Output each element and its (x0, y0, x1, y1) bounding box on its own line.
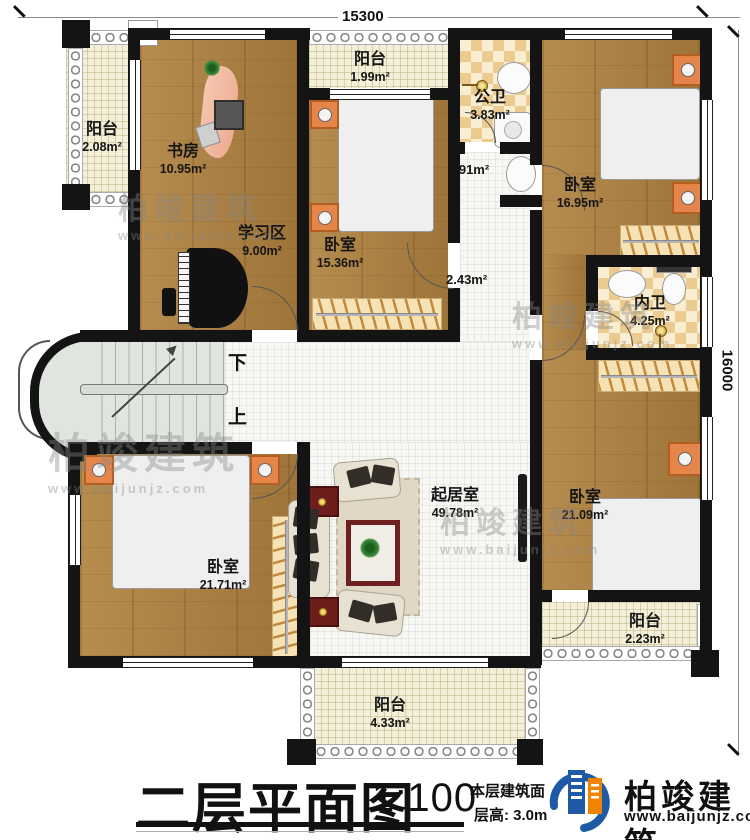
wall (448, 28, 460, 243)
floor-height-text: 层高: 3.0m (474, 804, 547, 825)
column (62, 20, 90, 48)
nightstand (668, 442, 702, 476)
railing (88, 30, 130, 45)
piano-icon (186, 248, 248, 328)
wall (297, 330, 460, 342)
title-underline-thin (136, 831, 464, 832)
floor-plan-canvas: 15300 16000 (0, 0, 750, 840)
plan-scale: 1:100 (372, 776, 477, 821)
railing (309, 30, 450, 45)
hall-floor (225, 342, 530, 442)
wall (586, 348, 712, 360)
logo-svg (540, 762, 618, 834)
wall (530, 210, 542, 315)
window (342, 657, 488, 668)
side-table (307, 597, 339, 627)
dimension-tick (696, 5, 708, 17)
wall (448, 142, 465, 154)
brand-name: 柏竣建筑 (624, 770, 750, 840)
wall (500, 195, 542, 207)
brand-logo-icon (540, 762, 618, 834)
dimension-line-right (738, 30, 739, 756)
column (287, 739, 316, 765)
sofa-cushion (373, 602, 398, 624)
window (123, 657, 253, 668)
balcony-bottom-floor (300, 667, 538, 750)
window (170, 29, 265, 40)
wall (586, 255, 598, 311)
title-underline (136, 822, 464, 827)
column (62, 184, 90, 210)
piano-keys (178, 252, 190, 324)
window (565, 29, 672, 40)
bed (112, 455, 250, 589)
railing (540, 646, 700, 661)
wall (586, 255, 712, 267)
closet (312, 298, 442, 330)
window (701, 417, 713, 500)
toilet-icon (662, 273, 686, 305)
piano-bench (162, 288, 176, 316)
bed (600, 88, 700, 180)
bed (338, 96, 434, 232)
window (69, 495, 81, 565)
floor-drain-icon (476, 80, 488, 92)
wall (297, 442, 310, 668)
sink-icon (608, 270, 646, 298)
railing (525, 668, 540, 744)
area-label-hallway: 2.43m² (446, 272, 487, 287)
stair-up-label: 上 (228, 402, 247, 429)
floor-drain-icon (655, 325, 667, 337)
wall (588, 590, 712, 602)
bed (592, 498, 702, 594)
railing (88, 192, 132, 207)
stair-handrail (80, 384, 228, 395)
railing (313, 744, 527, 759)
dimension-right-label: 16000 (718, 346, 735, 396)
wall (80, 330, 252, 342)
nightstand (84, 455, 114, 485)
closet (620, 225, 702, 257)
wall (500, 142, 542, 154)
plant-icon (360, 538, 380, 558)
wall (430, 88, 460, 100)
closet (598, 360, 700, 392)
nightstand (310, 203, 339, 232)
area-label-niche: 0.91m² (448, 162, 489, 177)
window (701, 100, 713, 200)
computer-monitor-icon (214, 100, 244, 130)
window (701, 277, 713, 347)
dimension-tick (13, 5, 25, 17)
nightstand (310, 100, 339, 129)
tv-icon (518, 474, 527, 562)
railing (68, 48, 83, 186)
brand-url: www.baijunjz.com (624, 808, 750, 825)
building-area-text: 本层建筑面 (470, 780, 545, 801)
column (691, 650, 719, 677)
window (129, 60, 141, 170)
window (330, 89, 430, 100)
dimension-top-label: 15300 (338, 8, 388, 25)
wall (530, 360, 542, 665)
drain-line (462, 84, 478, 86)
wall (530, 590, 552, 602)
wall (297, 88, 330, 100)
plant-icon (204, 60, 220, 76)
stair-down-label: 下 (228, 348, 247, 375)
sofa-cushion (371, 464, 396, 486)
wall (297, 28, 309, 342)
toilet-icon (497, 62, 531, 94)
wall (68, 442, 252, 454)
railing (300, 668, 315, 744)
